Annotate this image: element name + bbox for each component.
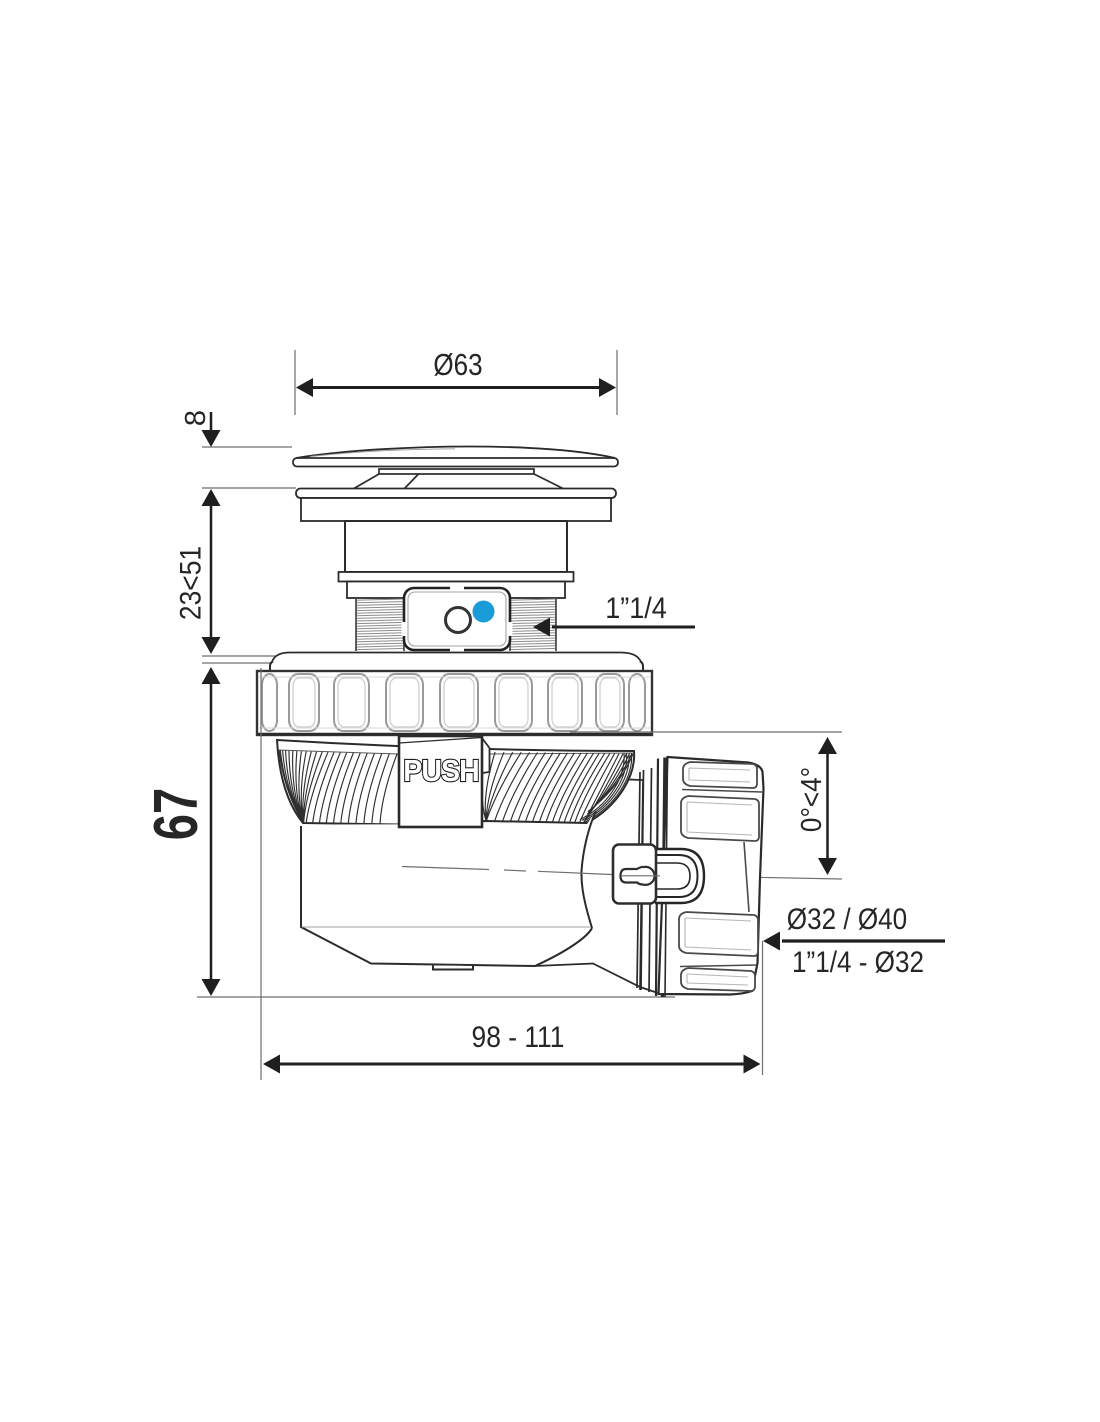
svg-text:8: 8 <box>180 410 212 426</box>
svg-text:0°<4°: 0°<4° <box>795 767 828 832</box>
svg-text:98 - 111: 98 - 111 <box>472 1019 565 1053</box>
svg-text:1”1/4 - Ø32: 1”1/4 - Ø32 <box>792 945 924 978</box>
svg-text:Ø32 / Ø40: Ø32 / Ø40 <box>787 902 907 935</box>
svg-text:Ø63: Ø63 <box>433 348 482 383</box>
svg-text:67: 67 <box>141 788 211 840</box>
svg-text:23<51: 23<51 <box>173 546 207 620</box>
svg-text:1”1/4: 1”1/4 <box>605 592 667 626</box>
svg-text:PUSH: PUSH <box>403 754 479 788</box>
